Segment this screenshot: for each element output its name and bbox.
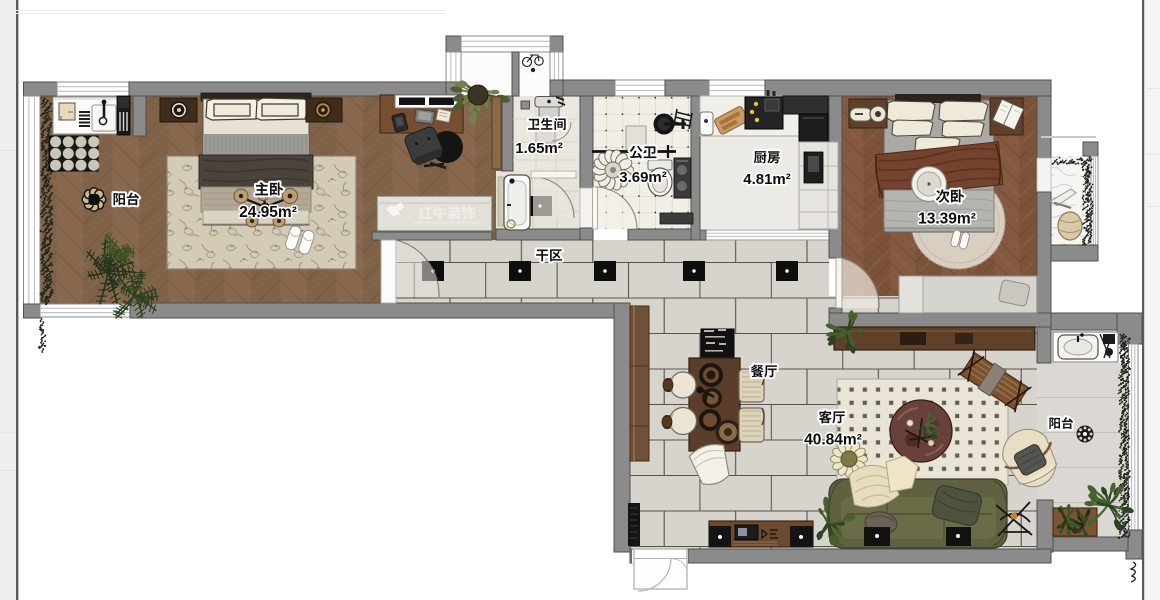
svg-text:13.39m²: 13.39m² — [918, 210, 976, 227]
svg-text:40.84m²: 40.84m² — [804, 431, 862, 448]
svg-text:24.95m²: 24.95m² — [239, 204, 297, 221]
svg-text:3.69m²: 3.69m² — [619, 169, 667, 186]
svg-text:1.65m²: 1.65m² — [515, 140, 563, 157]
svg-text:4.81m²: 4.81m² — [743, 171, 791, 188]
